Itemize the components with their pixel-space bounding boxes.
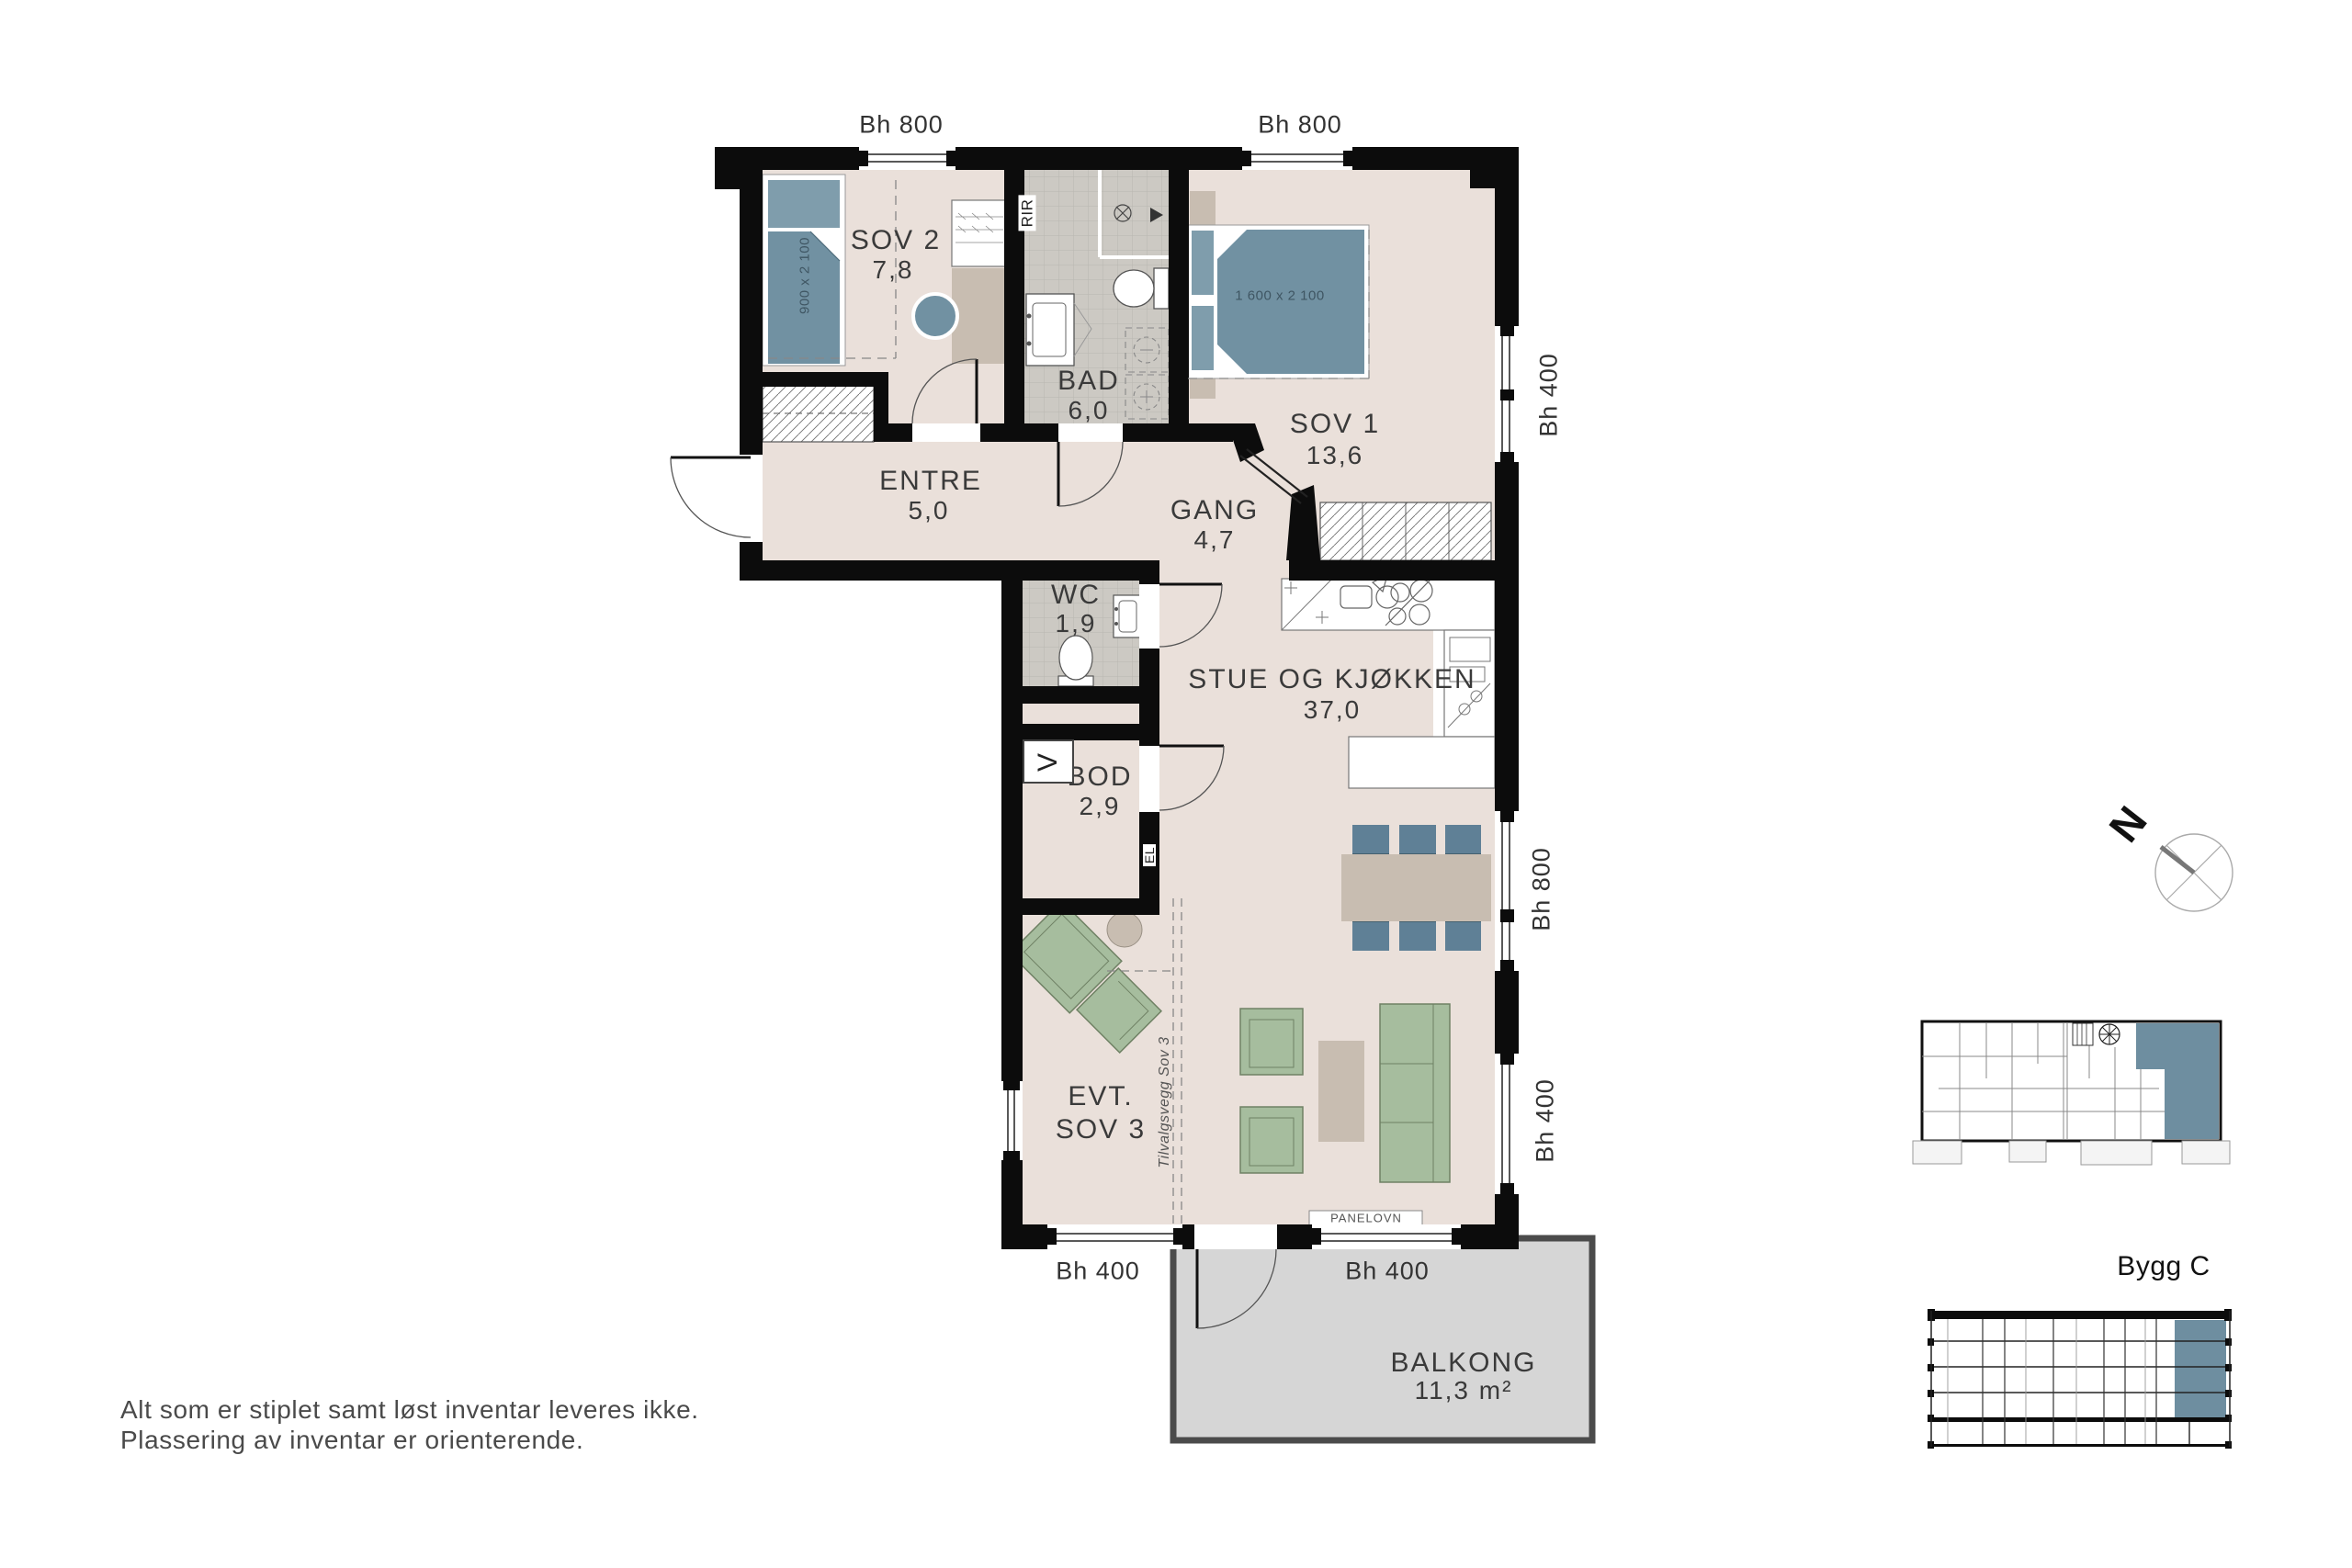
dim-right-top: Bh 400: [1537, 353, 1562, 437]
room-label-wc: WC: [1051, 581, 1101, 609]
floor-plan-page: Bh 800 Bh 800 Bh 400 Bh 800 Bh 400 Bh 40…: [0, 0, 2352, 1568]
ventilation-label: V: [1023, 739, 1074, 784]
entrance-door: [671, 455, 763, 542]
room-label-bod: BOD: [1067, 763, 1132, 791]
overview-plan: [1913, 1021, 2230, 1165]
el-label: EL: [1143, 844, 1156, 866]
building-label: Bygg C: [2117, 1253, 2210, 1280]
window-bottom-left: [1047, 1224, 1182, 1249]
room-label-stue: STUE OG KJØKKEN: [1188, 666, 1476, 694]
window-sov2-top: [859, 147, 955, 170]
window-sov1-top: [1242, 147, 1352, 170]
room-area-balkong: 11,3 m²: [1415, 1378, 1513, 1404]
wardrobe-entre: [763, 386, 874, 442]
window-bottom-right: [1312, 1224, 1461, 1249]
bed-size-sov1: 1 600 x 2 100: [1235, 289, 1324, 303]
dim-bottom-right: Bh 400: [1345, 1259, 1430, 1284]
room-area-sov1: 13,6: [1306, 443, 1364, 468]
window-sov1-right: [1495, 326, 1519, 462]
room-label-sov3-line1: EVT.: [1068, 1083, 1133, 1111]
room-label-balkong: BALKONG: [1390, 1349, 1536, 1377]
room-label-entre: ENTRE: [879, 468, 982, 495]
room-area-sov2: 7,8: [873, 257, 914, 283]
window-sov3-left: [1001, 1081, 1023, 1160]
room-label-sov1: SOV 1: [1290, 411, 1380, 438]
disclaimer-line-2: Plassering av inventar er orienterende.: [120, 1426, 583, 1455]
room-area-wc: 1,9: [1056, 611, 1097, 637]
room-area-stue: 37,0: [1304, 697, 1362, 723]
window-dining-right: [1495, 811, 1519, 971]
room-label-gang: GANG: [1170, 497, 1259, 525]
optional-wall-label: Tilvalgsvegg Sov 3: [1158, 1036, 1172, 1168]
north-compass: [2155, 834, 2233, 911]
room-area-bad: 6,0: [1069, 398, 1110, 423]
floor-plan-drawing: [0, 0, 2352, 1568]
dim-right-mid: Bh 800: [1530, 847, 1555, 931]
window-stue-right: [1495, 1054, 1519, 1194]
overview-highlight-bottom: [2165, 1069, 2219, 1139]
dining-set: [1341, 825, 1491, 951]
overview-highlight-top: [2136, 1023, 2219, 1069]
room-label-sov3-line2: SOV 3: [1056, 1116, 1146, 1144]
dim-top-right: Bh 800: [1258, 113, 1342, 138]
room-area-entre: 5,0: [909, 498, 950, 524]
elevation-highlight: [2175, 1320, 2226, 1417]
dim-top-left: Bh 800: [859, 113, 944, 138]
dim-right-bottom: Bh 400: [1533, 1078, 1558, 1163]
bed-size-sov2: 900 x 2 100: [798, 237, 812, 314]
wardrobe-sov1: [1320, 502, 1491, 560]
desk-sov2: [952, 268, 1007, 364]
desk-chair-sov2: [913, 294, 957, 338]
panelovn-label: PANELOVN: [1330, 1213, 1402, 1224]
room-label-bad: BAD: [1057, 367, 1120, 395]
room-area-bod: 2,9: [1080, 794, 1121, 819]
rir-label: RIR: [1019, 196, 1036, 231]
room-label-sov2: SOV 2: [851, 227, 941, 254]
dim-bottom-left: Bh 400: [1056, 1259, 1140, 1284]
building-elevation: [1928, 1309, 2232, 1449]
disclaimer-line-1: Alt som er stiplet samt løst inventar le…: [120, 1395, 699, 1425]
room-area-gang: 4,7: [1194, 527, 1236, 553]
dresser-sov2: [952, 200, 1007, 266]
